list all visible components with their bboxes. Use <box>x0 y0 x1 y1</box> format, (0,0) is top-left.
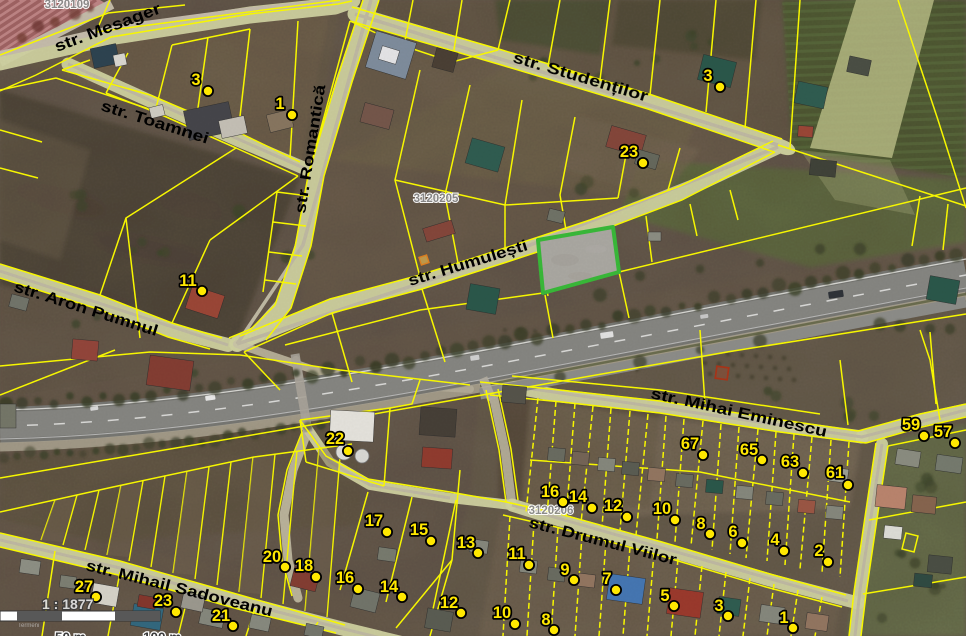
svg-text:20: 20 <box>263 548 281 566</box>
svg-text:18: 18 <box>295 557 313 575</box>
svg-text:8: 8 <box>541 611 550 629</box>
svg-text:7: 7 <box>602 570 611 588</box>
svg-text:3120109: 3120109 <box>45 0 90 11</box>
svg-text:21: 21 <box>212 607 230 625</box>
svg-text:50 m: 50 m <box>55 630 86 636</box>
svg-text:22: 22 <box>326 430 344 448</box>
svg-text:15: 15 <box>410 521 428 539</box>
svg-text:59: 59 <box>902 416 920 434</box>
svg-text:13: 13 <box>457 534 475 552</box>
svg-text:100 m: 100 m <box>143 630 181 636</box>
svg-text:65: 65 <box>740 441 758 459</box>
svg-text:11: 11 <box>179 272 196 290</box>
svg-text:10: 10 <box>653 500 671 518</box>
svg-text:23: 23 <box>620 143 638 161</box>
svg-text:1 : 1877: 1 : 1877 <box>42 596 94 612</box>
svg-text:6: 6 <box>728 523 737 541</box>
svg-text:67: 67 <box>681 435 699 453</box>
svg-text:2: 2 <box>814 542 823 560</box>
svg-text:12: 12 <box>440 594 458 612</box>
svg-text:3120205: 3120205 <box>414 193 459 205</box>
svg-text:11: 11 <box>508 545 525 563</box>
svg-text:3: 3 <box>714 597 723 615</box>
svg-text:10: 10 <box>493 604 511 622</box>
svg-text:14: 14 <box>569 488 588 506</box>
svg-text:27: 27 <box>75 578 93 596</box>
svg-text:61: 61 <box>826 464 844 482</box>
svg-text:9: 9 <box>560 561 569 579</box>
svg-text:12: 12 <box>604 497 622 515</box>
svg-text:5: 5 <box>660 587 669 605</box>
svg-text:1: 1 <box>779 609 788 627</box>
svg-text:14: 14 <box>380 578 399 596</box>
svg-text:16: 16 <box>541 483 559 501</box>
svg-text:4: 4 <box>770 531 780 549</box>
svg-text:1: 1 <box>275 95 284 113</box>
svg-text:23: 23 <box>154 592 172 610</box>
svg-text:17: 17 <box>365 512 383 530</box>
svg-text:3: 3 <box>703 67 712 85</box>
svg-text:3120206: 3120206 <box>529 505 574 517</box>
svg-text:57: 57 <box>934 423 952 441</box>
svg-text:16: 16 <box>336 569 354 587</box>
svg-text:63: 63 <box>781 453 799 471</box>
svg-text:3: 3 <box>191 71 200 89</box>
svg-text:8: 8 <box>696 515 705 533</box>
svg-text:Termeni: Termeni <box>18 623 39 629</box>
